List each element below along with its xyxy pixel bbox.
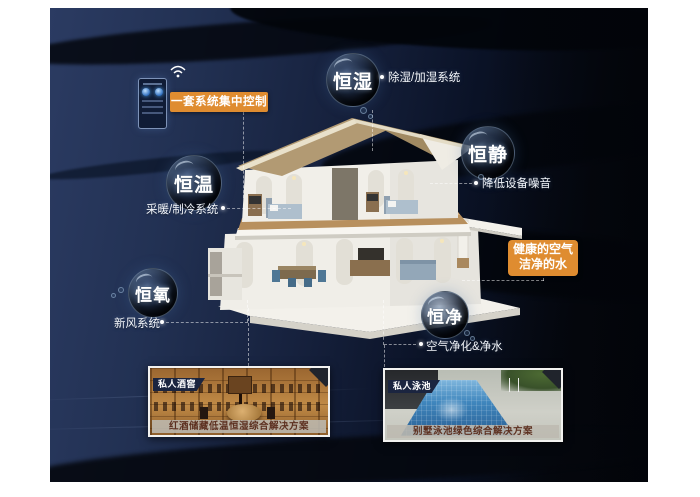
wine-cellar-card: 私人酒窖 红酒储藏低温恒湿综合解决方案	[148, 366, 330, 437]
mini-bubble	[360, 107, 367, 114]
infographic-poster: 一套系统集中控制 恒湿 恒静 恒温 恒氧 恒净	[0, 0, 700, 497]
artwork-canvas: 一套系统集中控制 恒湿 恒静 恒温 恒氧 恒净	[50, 8, 648, 482]
bubble-constant-quiet: 恒静	[461, 126, 515, 180]
mini-bubble	[111, 293, 116, 298]
mini-bubble	[368, 114, 373, 119]
smart-control-panel	[138, 78, 167, 129]
highlight-box-healthy-air-clean-water: 健康的空气 洁净的水	[508, 240, 578, 276]
highlight-line1: 健康的空气	[508, 242, 578, 257]
connector-dot	[160, 320, 164, 324]
note-heating-cooling-system: 采暖/制冷系统	[146, 201, 218, 217]
note-reduce-equipment-noise: 降低设备噪音	[482, 175, 551, 191]
mini-bubble	[464, 330, 470, 336]
bubble-constant-purity: 恒净	[421, 291, 469, 339]
note-dehumidify-humidify-system: 除湿/加湿系统	[388, 69, 460, 85]
connector-line	[384, 345, 385, 367]
connector-dot	[221, 206, 225, 210]
connector-line	[383, 300, 384, 345]
connector-line	[166, 322, 248, 323]
bubble-constant-humidity: 恒湿	[326, 53, 380, 107]
pool-card: 私人泳池 别墅泳池绿色综合解决方案	[383, 368, 563, 442]
bubble-label: 恒净	[427, 303, 463, 328]
connector-line	[384, 344, 416, 345]
connector-line	[227, 208, 291, 209]
connector-dot	[474, 181, 478, 185]
bubble-label: 恒静	[468, 140, 508, 167]
note-fresh-air-system: 新风系统	[114, 315, 160, 331]
connector-dot	[380, 75, 384, 79]
highlight-line2: 洁净的水	[508, 257, 578, 272]
card-caption-pool-solution: 别墅泳池绿色综合解决方案	[387, 425, 559, 438]
connector-line	[430, 183, 472, 184]
bubble-label: 恒温	[174, 170, 214, 197]
connector-dot	[419, 342, 423, 346]
wifi-icon	[170, 64, 186, 78]
card-badge-private-wine-cellar: 私人酒窖	[153, 378, 205, 391]
mini-bubble	[118, 287, 124, 293]
bubble-label: 恒湿	[333, 67, 373, 94]
connector-line	[248, 308, 249, 366]
card-badge-private-pool: 私人泳池	[388, 380, 440, 393]
card-caption-wine-solution: 红酒储藏低温恒湿综合解决方案	[152, 420, 326, 433]
connector-line	[243, 112, 244, 198]
note-air-water-purification: 空气净化&净水	[426, 338, 503, 354]
control-panel-label: 一套系统集中控制	[170, 92, 268, 112]
bubble-constant-oxygen: 恒氧	[128, 268, 178, 318]
bubble-label: 恒氧	[135, 281, 171, 306]
connector-line	[462, 280, 544, 281]
